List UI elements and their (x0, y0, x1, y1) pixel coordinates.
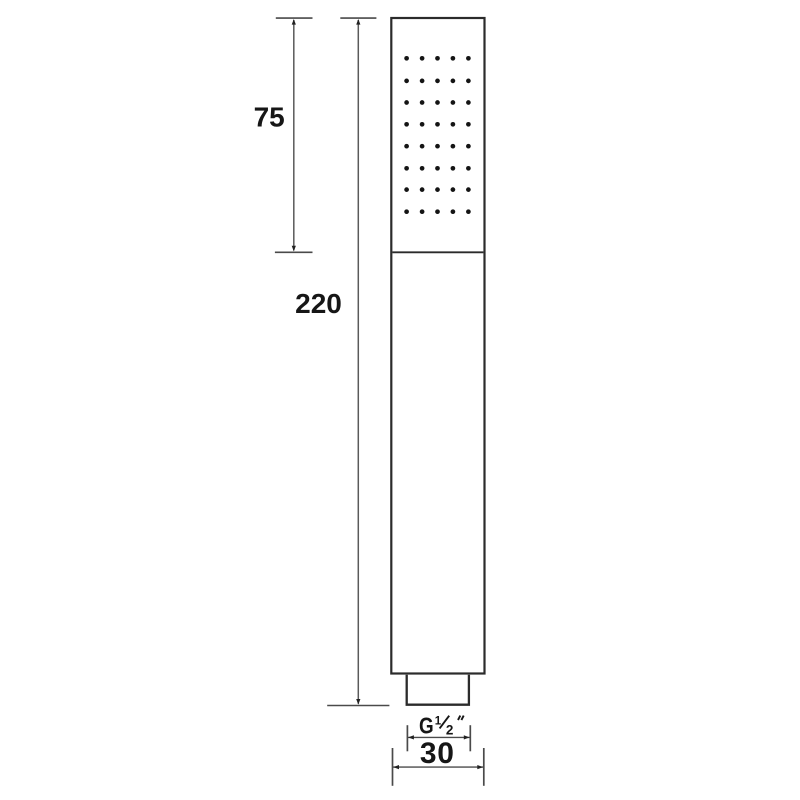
svg-text:220: 220 (295, 288, 342, 319)
svg-text:30: 30 (420, 737, 455, 770)
svg-text:G: G (419, 714, 434, 739)
svg-text:75: 75 (254, 102, 285, 133)
svg-text:2: 2 (446, 722, 454, 737)
